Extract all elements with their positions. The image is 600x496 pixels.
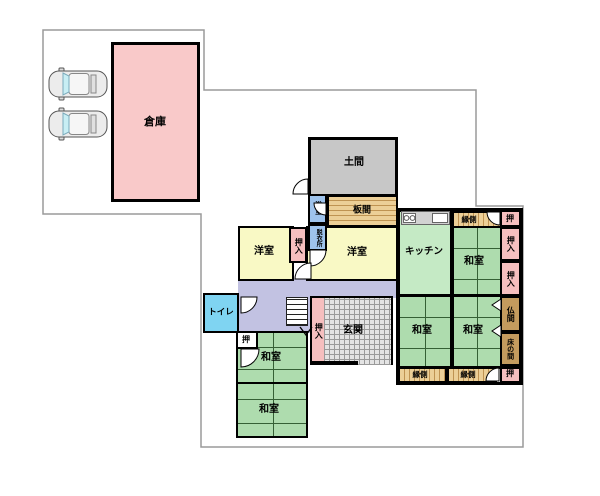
room-label: 玄関 <box>343 326 363 337</box>
room-label: 押入 <box>506 271 514 287</box>
room-label: 洋室 <box>254 247 274 258</box>
room-label: 倉庫 <box>144 116 166 128</box>
room-label: 和室 <box>463 326 483 337</box>
wall <box>396 366 523 369</box>
room-label: 洋室 <box>347 248 367 259</box>
stairs <box>286 297 308 326</box>
room-label: 縁側 <box>462 216 477 224</box>
room-label: 縁側 <box>413 371 428 379</box>
door-arc-doma <box>293 179 308 194</box>
room-label: 押 <box>242 336 250 344</box>
room-label: 土間 <box>344 158 364 169</box>
wall <box>396 382 523 385</box>
room-label: キッチン <box>405 247 443 257</box>
room-label: 押入 <box>506 236 514 252</box>
room-label: 和室 <box>261 353 281 364</box>
room-label: 仏間 <box>506 306 514 322</box>
room-label: 床の間 <box>506 339 513 360</box>
room-label: 押 <box>506 370 514 378</box>
room-label: 浴室 <box>314 201 321 215</box>
wall <box>396 208 523 211</box>
room-label: 和室 <box>464 257 484 268</box>
car-icon <box>47 67 109 101</box>
room-label: 脱衣所 <box>315 229 321 247</box>
room-label: トイレ <box>208 309 234 318</box>
room-label: 和室 <box>259 405 279 416</box>
room-label: 縁側 <box>461 371 476 379</box>
car-icon <box>47 107 109 141</box>
wall <box>310 361 358 365</box>
room-label: 板間 <box>353 206 371 215</box>
stove-icon <box>403 213 416 223</box>
wall <box>396 294 523 297</box>
room-label: 押 <box>506 215 514 223</box>
floor-plan: 倉庫 土間 板間 浴室 脱衣所 洋室 押入 洋室 キッチン 縁側 押 押入 押入… <box>0 0 600 496</box>
room-label: 押入 <box>294 238 302 254</box>
sink <box>432 213 448 223</box>
room-label: 押入 <box>314 323 322 339</box>
room-label: 和室 <box>412 326 432 337</box>
